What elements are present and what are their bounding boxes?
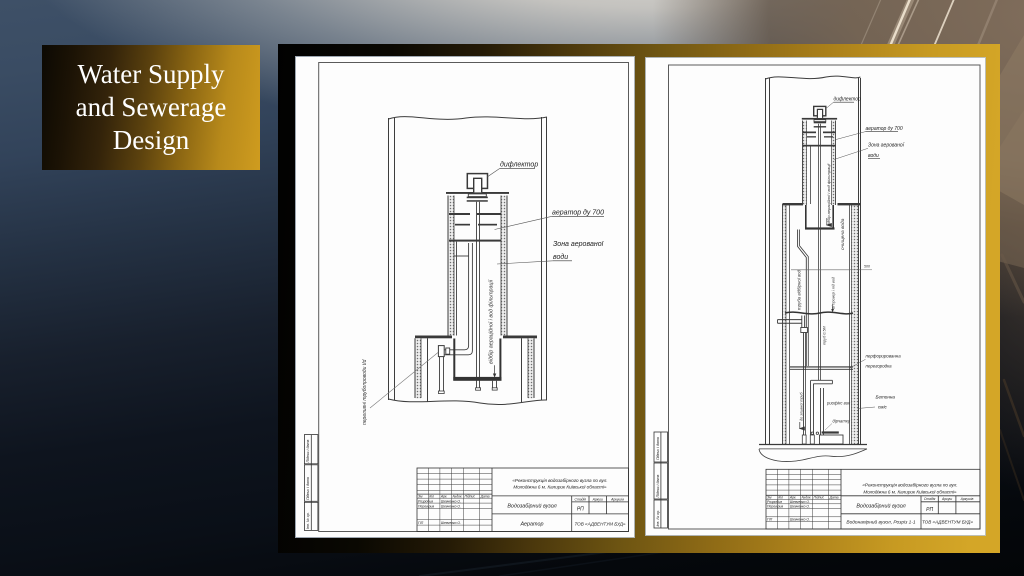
svg-text:дірчатку: дірчатку [833, 419, 851, 424]
svg-text:сміс: сміс [878, 405, 887, 410]
svg-text:Зм: Зм [767, 496, 772, 500]
svg-text:труба відбірної вод: труба відбірної вод [797, 269, 802, 310]
svg-text:Дата: Дата [480, 494, 490, 498]
svg-text:Розробив: Розробив [767, 500, 782, 504]
svg-text:Шевченко О.: Шевченко О. [790, 505, 810, 509]
svg-text:перегородка: перегородка [866, 364, 893, 369]
svg-text:РП: РП [926, 507, 933, 513]
svg-text:Кіл: Кіл [429, 494, 434, 498]
svg-text:Водозабірний вузол: Водозабірний вузол [507, 503, 556, 510]
svg-text:ГІП: ГІП [418, 521, 424, 525]
svg-text:ГІП: ГІП [767, 518, 773, 522]
svg-text:Дата: Дата [829, 496, 839, 500]
svg-text:Бетонна: Бетонна [876, 395, 896, 400]
svg-text:Інв. № ор.: Інв. № ор. [306, 512, 310, 529]
svg-text:аератор ду 700: аератор ду 700 [866, 126, 903, 132]
svg-text:очищена вода: очищена вода [840, 218, 846, 250]
svg-text:дифлектор: дифлектор [500, 161, 538, 169]
svg-text:Підпис і дата: Підпис і дата [656, 437, 660, 460]
svg-text:Стадія: Стадія [924, 497, 936, 501]
svg-text:Підпис: Підпис [465, 494, 476, 498]
svg-text:Перевірив: Перевірив [418, 505, 434, 509]
svg-text:Шевченко О.: Шевченко О. [790, 500, 810, 504]
svg-text:Зм: Зм [418, 494, 423, 498]
svg-text:Аркушів: Аркушів [960, 497, 974, 501]
svg-text:до зливної труб: до зливної труб [800, 392, 804, 421]
svg-text:риофікс вик: риофікс вик [826, 401, 851, 406]
svg-text:Водозабірний вузол: Водозабірний вузол [856, 503, 905, 510]
svg-text:Кіл: Кіл [778, 496, 783, 500]
svg-text:води: води [868, 153, 879, 159]
svg-text:Зона аерованої: Зона аерованої [868, 143, 905, 149]
svg-text:Аркуш: Аркуш [941, 497, 952, 501]
svg-text:«Реконструкція водозабірного в: «Реконструкція водозабірного вузла по ву… [512, 478, 607, 483]
svg-text:Арк: Арк [789, 496, 796, 500]
svg-text:перфорированна: перфорированна [866, 354, 902, 359]
svg-text:Молодіжна 6 м. Калирик Київськ: Молодіжна 6 м. Калирик Київської області… [513, 485, 607, 490]
svg-text:Водонапірний вузол, Розріз 1-1: Водонапірний вузол, Розріз 1-1 [846, 519, 916, 526]
svg-text:Інв. № ор.: Інв. № ор. [656, 510, 660, 527]
svg-text:Молодіжна 6 м. Калирик Київськ: Молодіжна 6 м. Калирик Київської області… [863, 489, 957, 494]
svg-text:Аркушів: Аркушів [610, 497, 624, 501]
svg-text:№док: №док [453, 494, 462, 498]
svg-text:«Реконструкція водозабірного в: «Реконструкція водозабірного вузла по ву… [862, 482, 957, 487]
svg-text:Аератор: Аератор [520, 522, 544, 528]
svg-text:Підпис: Підпис [814, 496, 825, 500]
svg-text:Підпис і дата: Підпис і дата [306, 440, 310, 463]
svg-text:Стадія: Стадія [575, 497, 587, 501]
svg-text:труб 0.5М: труб 0.5М [823, 325, 827, 345]
svg-text:води: води [553, 253, 568, 261]
svg-text:відбір аераційної і вод фільтр: відбір аераційної і вод фільтрації [826, 163, 831, 226]
svg-text:Арк: Арк [440, 494, 447, 498]
svg-text:Підпис і дата: Підпис і дата [656, 475, 660, 498]
svg-text:відбір аераційної і вод фільтр: відбір аераційної і вод фільтрації [488, 279, 495, 364]
svg-text:ТОВ «АДВЕНТУМ БУД»: ТОВ «АДВЕНТУМ БУД» [574, 522, 626, 527]
svg-text:Шевченко О.: Шевченко О. [790, 518, 810, 522]
svg-text:аератор ду 700: аератор ду 700 [552, 209, 604, 217]
svg-text:Перевірив: Перевірив [767, 505, 783, 509]
svg-text:Зона аерованої: Зона аерованої [553, 241, 605, 248]
svg-text:Шевченко О.: Шевченко О. [441, 505, 461, 509]
svg-text:РП: РП [577, 507, 584, 513]
svg-text:Ві провер і niд вод: Ві провер і niд вод [832, 277, 836, 309]
svg-text:Шевченко О.: Шевченко О. [441, 521, 461, 525]
svg-text:ТОВ «АДВЕНТУМ БУД»: ТОВ «АДВЕНТУМ БУД» [922, 520, 974, 525]
svg-text:дифлектор: дифлектор [834, 97, 862, 103]
svg-text:Підпис і дата: Підпис і дата [306, 477, 310, 500]
svg-text:№док: №док [802, 496, 811, 500]
svg-text:Розробив: Розробив [418, 499, 433, 503]
svg-text:Аркуш: Аркуш [592, 497, 603, 501]
svg-text:500: 500 [864, 265, 870, 269]
svg-text:Шевченко О.: Шевченко О. [441, 499, 461, 503]
svg-text:переливні трубопроводи t/d: переливні трубопроводи t/d [362, 359, 368, 425]
